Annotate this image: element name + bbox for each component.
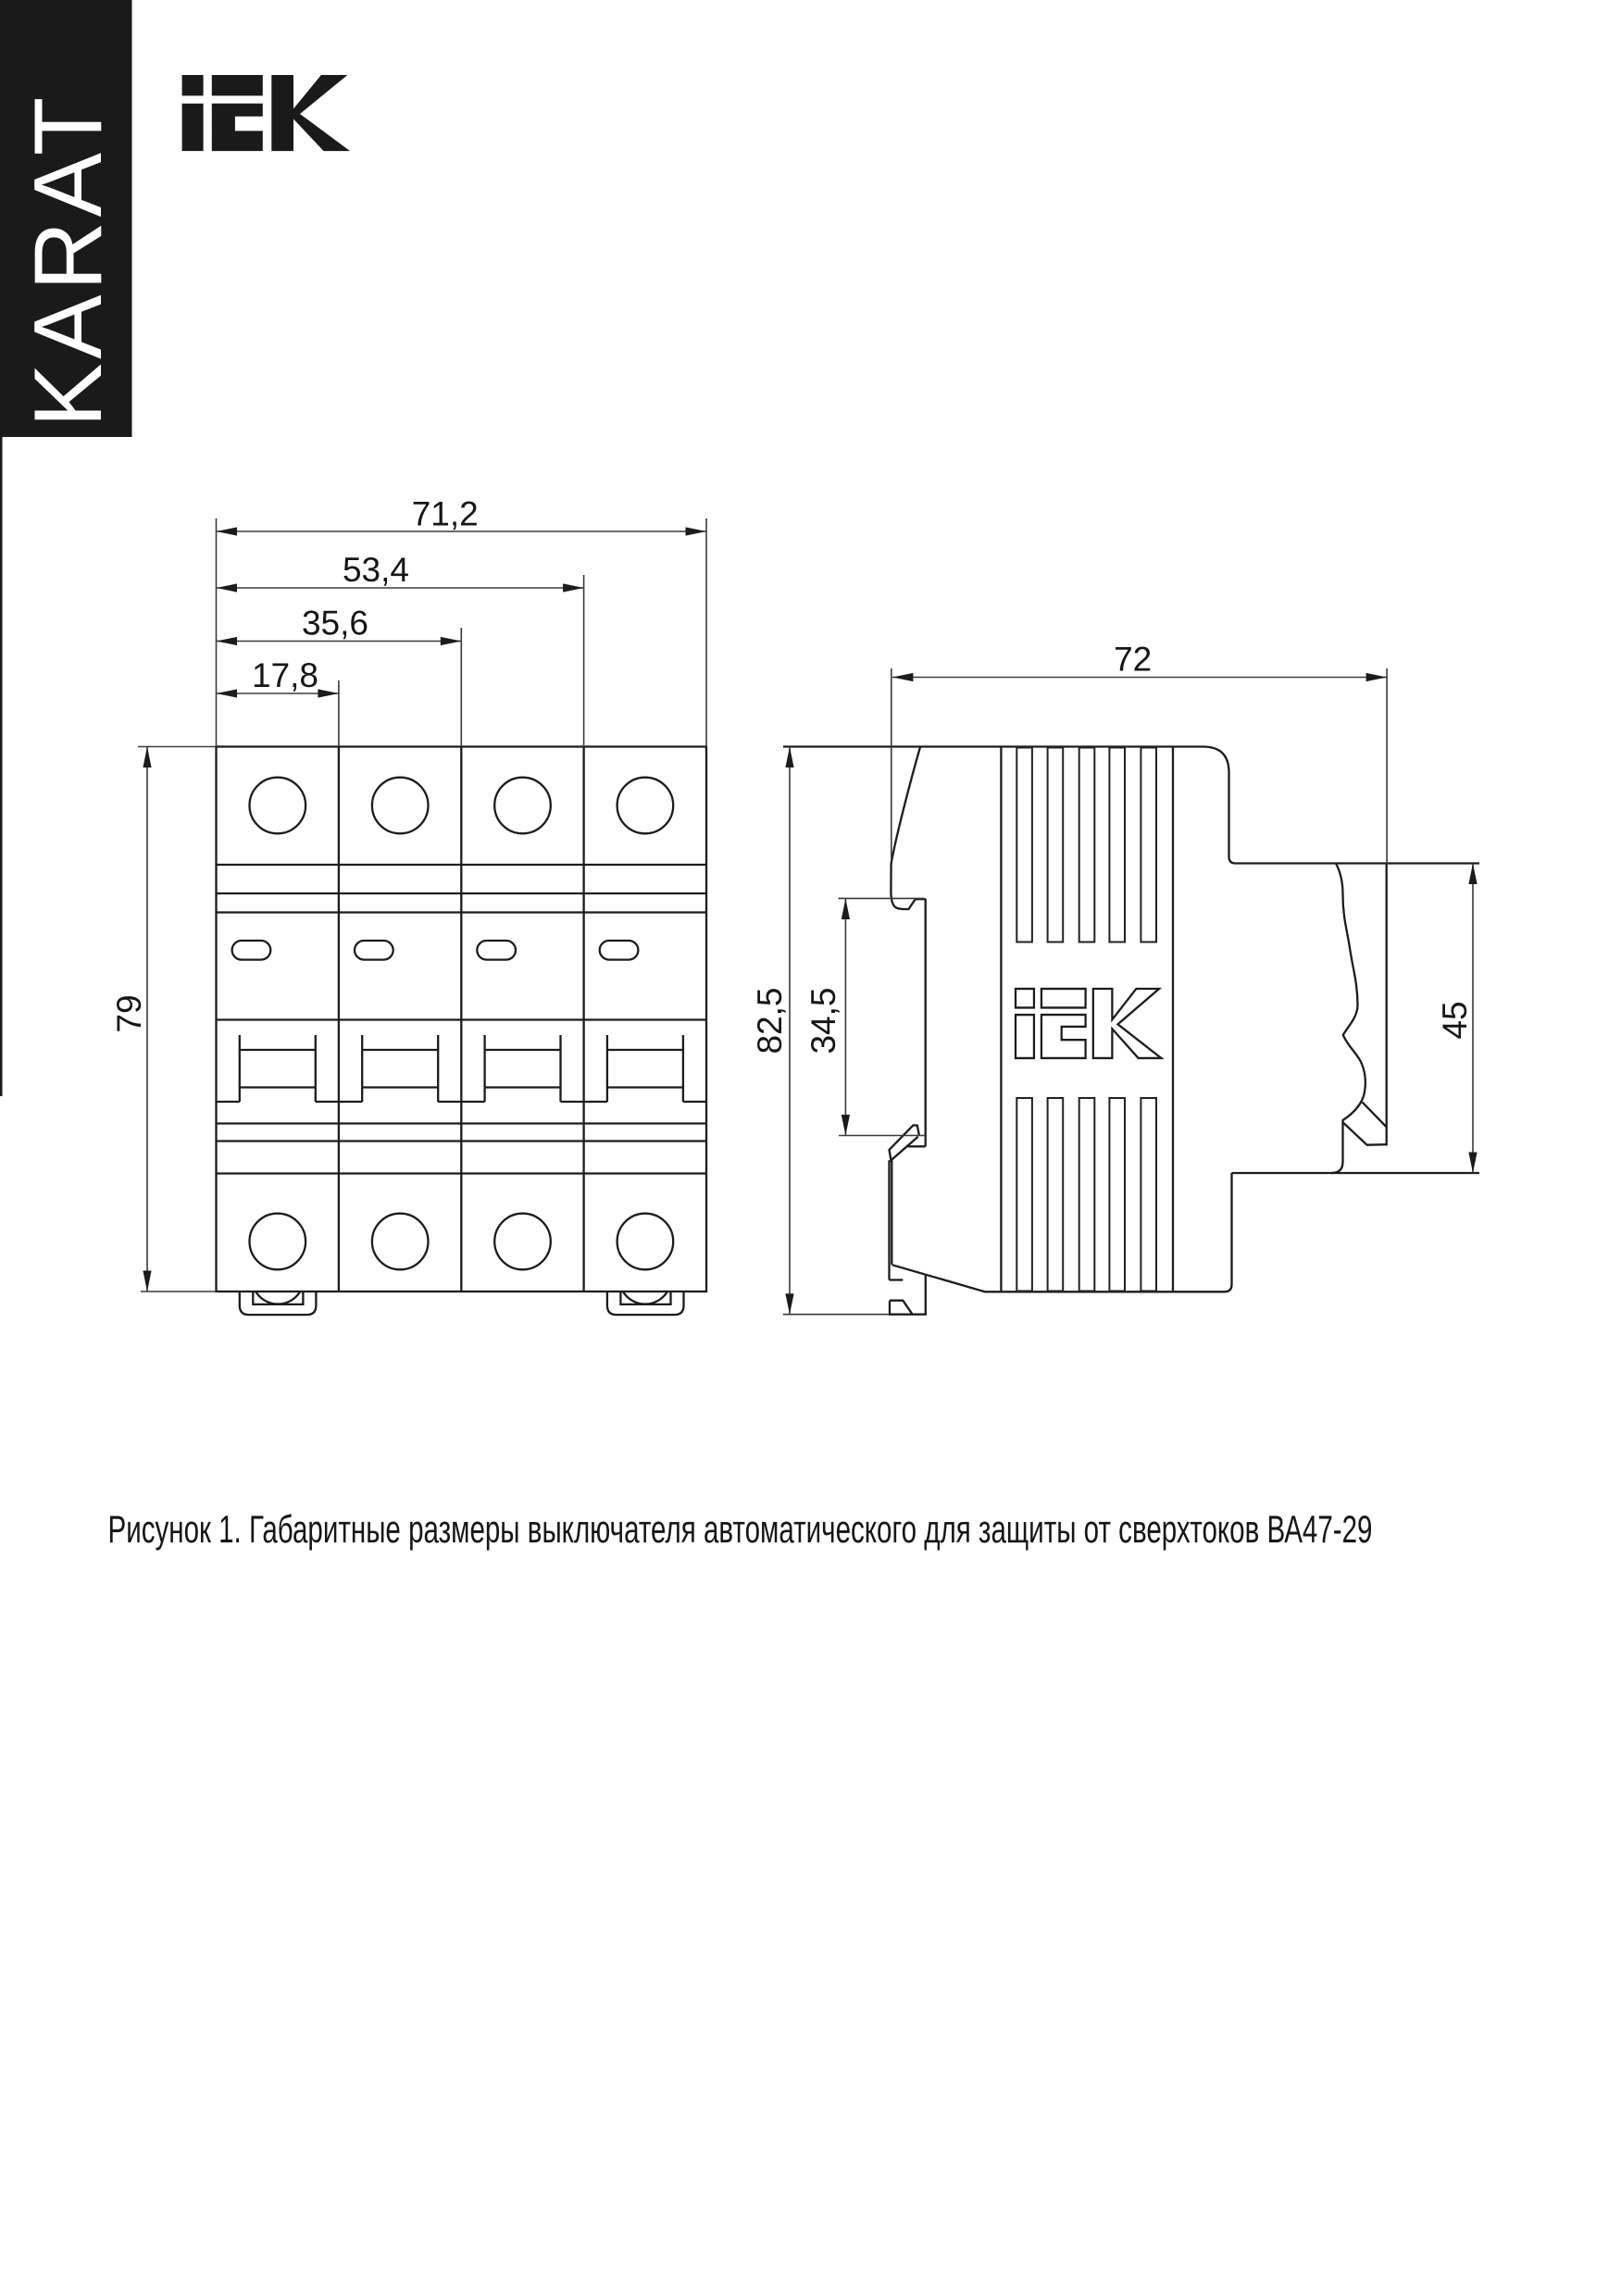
svg-text:79: 79 — [110, 994, 148, 1032]
svg-text:53,4: 53,4 — [343, 551, 409, 589]
svg-text:17,8: 17,8 — [252, 656, 318, 694]
svg-text:71,2: 71,2 — [412, 494, 479, 532]
svg-text:35,6: 35,6 — [302, 605, 368, 643]
svg-text:45: 45 — [1436, 1001, 1474, 1039]
svg-text:72: 72 — [1114, 641, 1152, 679]
svg-text:Рисунок 1. Габаритные размеры: Рисунок 1. Габаритные размеры выключател… — [108, 1507, 1373, 1551]
svg-text:82,5: 82,5 — [751, 987, 789, 1054]
svg-text:KARAT: KARAT — [15, 93, 122, 428]
svg-text:34,5: 34,5 — [804, 987, 842, 1054]
